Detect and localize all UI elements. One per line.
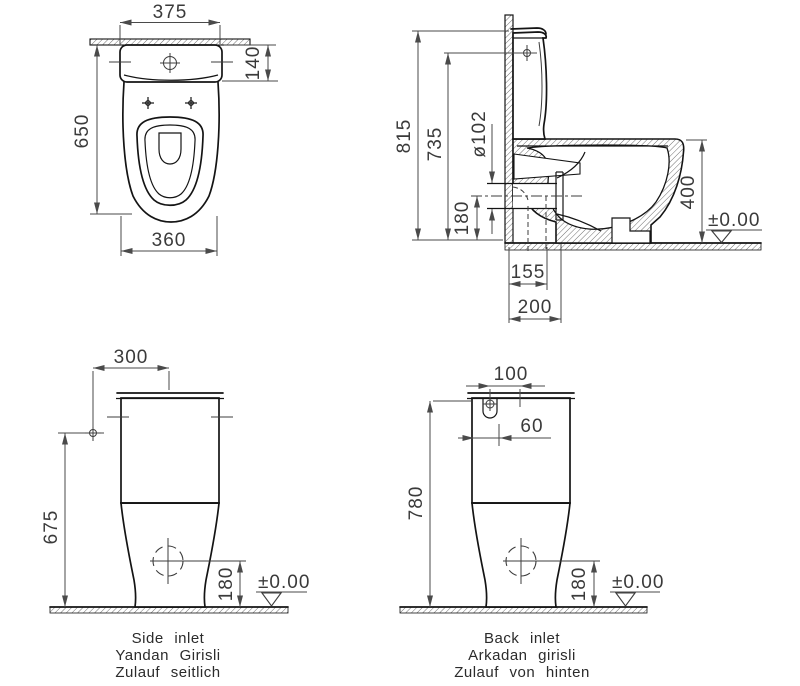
dim-label: 60 [520, 416, 543, 437]
datum-triangle-icon [712, 231, 731, 243]
caption-en: Back inlet [484, 630, 560, 647]
floor-level-mark: ±0.00 [256, 572, 310, 606]
dim-label: 155 [511, 262, 546, 283]
hinge-mark-left-icon [142, 97, 154, 109]
floor-section [505, 243, 761, 250]
dim-label: 140 [243, 46, 264, 81]
dim-label: 815 [394, 119, 415, 154]
datum-triangle-icon [262, 593, 281, 606]
dim-label: 735 [425, 127, 446, 162]
side-inlet-view: 300 675 180 ±0.00 Side inlet Yandan Giri… [41, 347, 310, 681]
floor-level-label: ±0.00 [258, 572, 310, 593]
pedestal-outline [121, 503, 219, 607]
dim-outlet-center-height: 180 [569, 561, 594, 607]
side-inlet-caption: Side inlet Yandan Girisli Zulauf seitlic… [115, 630, 220, 681]
caption-de: Zulauf von hinten [454, 664, 590, 681]
caption-en: Side inlet [132, 630, 205, 647]
dim-outlet-center-height: 180 [216, 561, 240, 607]
dim-label: 360 [152, 230, 187, 251]
caption-tr: Yandan Girisli [115, 647, 220, 664]
technical-drawing-page: 375 140 650 360 [0, 0, 800, 686]
dim-label: 780 [406, 486, 427, 521]
dim-label: 180 [452, 201, 473, 236]
dim-tank-depth: 140 [222, 45, 278, 81]
floor-level-mark: ±0.00 [706, 210, 762, 243]
hinge-mark-right-icon [185, 97, 197, 109]
wall-section [90, 39, 250, 45]
dim-label: 650 [72, 114, 93, 149]
drawing-canvas: 375 140 650 360 [0, 0, 800, 686]
dim-outlet-distance: 155 200 [509, 244, 561, 323]
dim-label: 675 [41, 510, 62, 545]
section-view: 815 735 ø102 180 400 ±0.00 [394, 15, 762, 323]
dim-outlet-center-height: 180 [452, 196, 477, 240]
lid-button-symbol [160, 53, 180, 73]
dim-inlet-height: 780 [406, 401, 471, 607]
floor-section [50, 607, 288, 613]
dim-inlet-height: 735 [425, 53, 448, 240]
dim-inlet-height: 675 [41, 433, 65, 607]
datum-triangle-icon [616, 593, 635, 606]
floor-level-label: ±0.00 [708, 210, 760, 231]
floor-section [400, 607, 647, 613]
dim-total-height: 815 [394, 31, 418, 240]
dim-label: 200 [518, 297, 553, 318]
floor-level-label: ±0.00 [612, 572, 664, 593]
dim-label: 180 [216, 567, 237, 602]
dim-overall-width: 375 [120, 2, 220, 44]
cistern-body [472, 398, 570, 503]
dim-label: 180 [569, 567, 590, 602]
dim-label: 400 [678, 175, 699, 210]
cistern-front-curve [124, 75, 218, 80]
dim-label: ø102 [469, 110, 490, 157]
back-inlet-caption: Back inlet Arkadan girisli Zulauf von hi… [454, 630, 590, 681]
caption-tr: Arkadan girisli [468, 647, 576, 664]
seat-inner-ring [145, 125, 195, 198]
flush-opening [159, 133, 181, 164]
caption-de: Zulauf seitlich [115, 664, 220, 681]
dim-label: 375 [153, 2, 188, 23]
cistern-body [121, 398, 219, 503]
dim-label: 100 [494, 364, 529, 385]
back-inlet-view: 100 60 780 180 ±0.00 Back inlet [400, 364, 664, 681]
dim-label: 300 [114, 347, 149, 368]
plan-view: 375 140 650 360 [72, 2, 278, 256]
floor-level-mark: ±0.00 [610, 572, 664, 606]
